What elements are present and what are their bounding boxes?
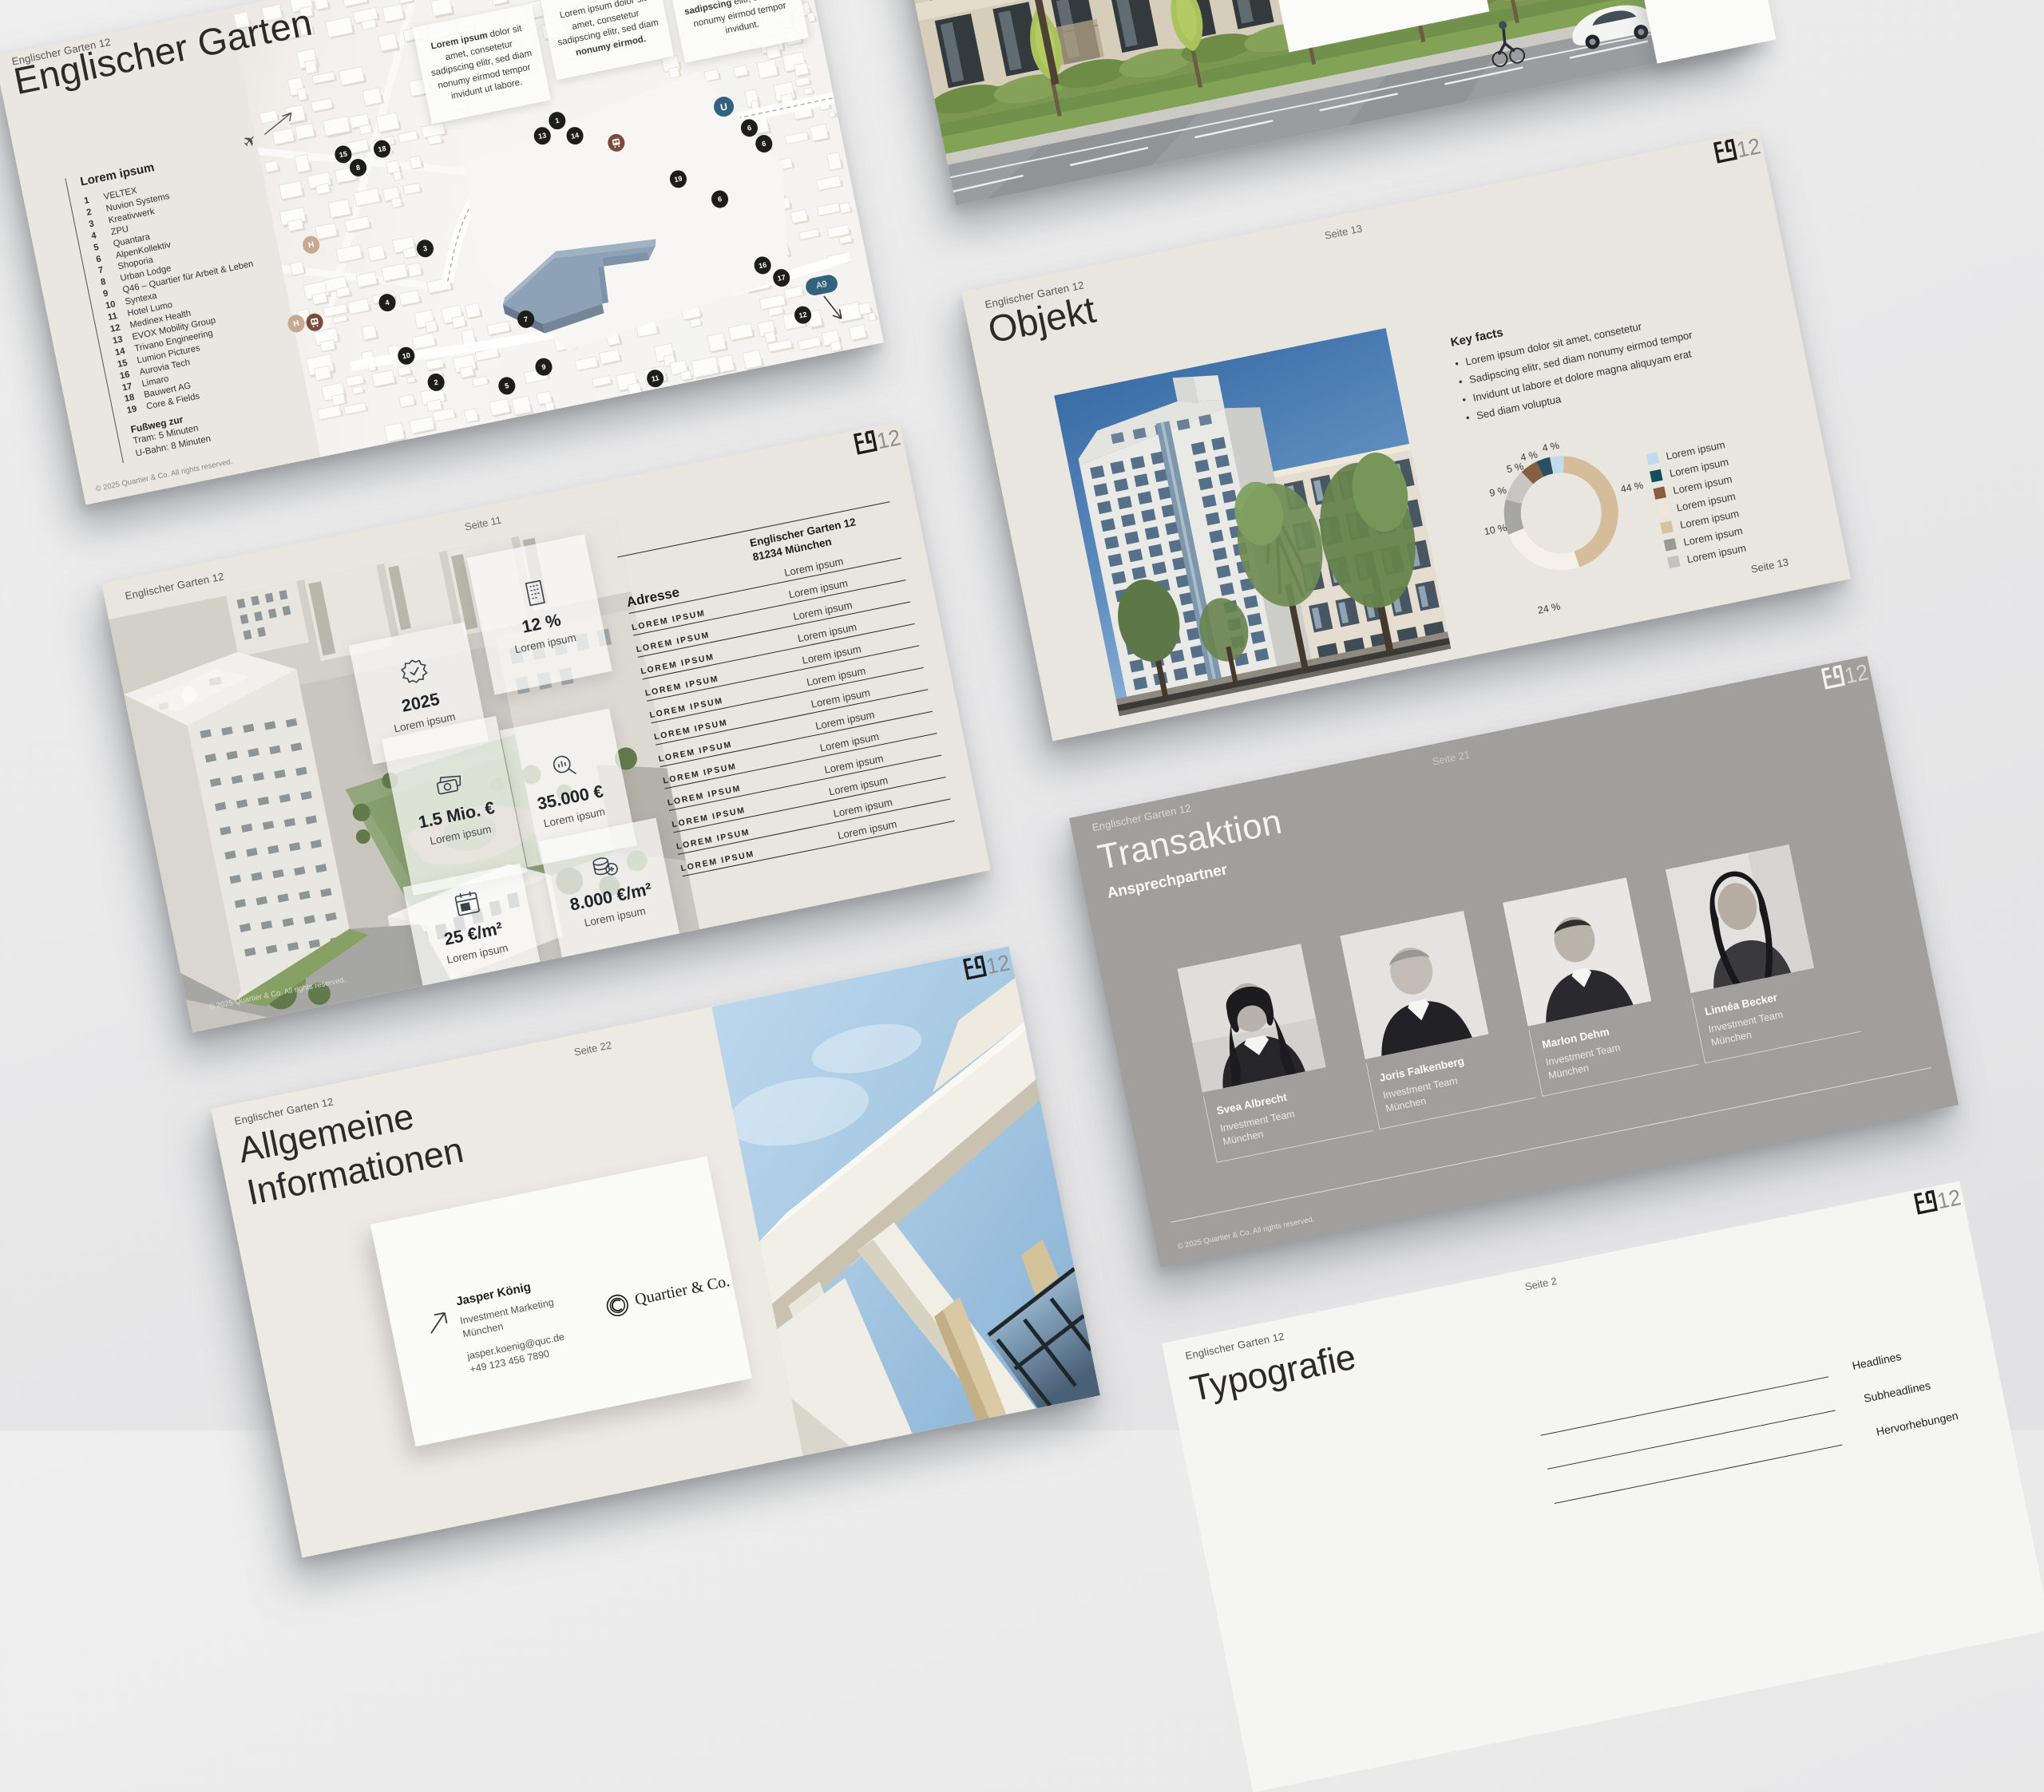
- svg-text:12: 12: [874, 425, 902, 454]
- svg-text:12: 12: [1935, 1185, 1963, 1214]
- svg-text:12: 12: [1842, 659, 1870, 689]
- svg-text:12: 12: [1734, 133, 1762, 163]
